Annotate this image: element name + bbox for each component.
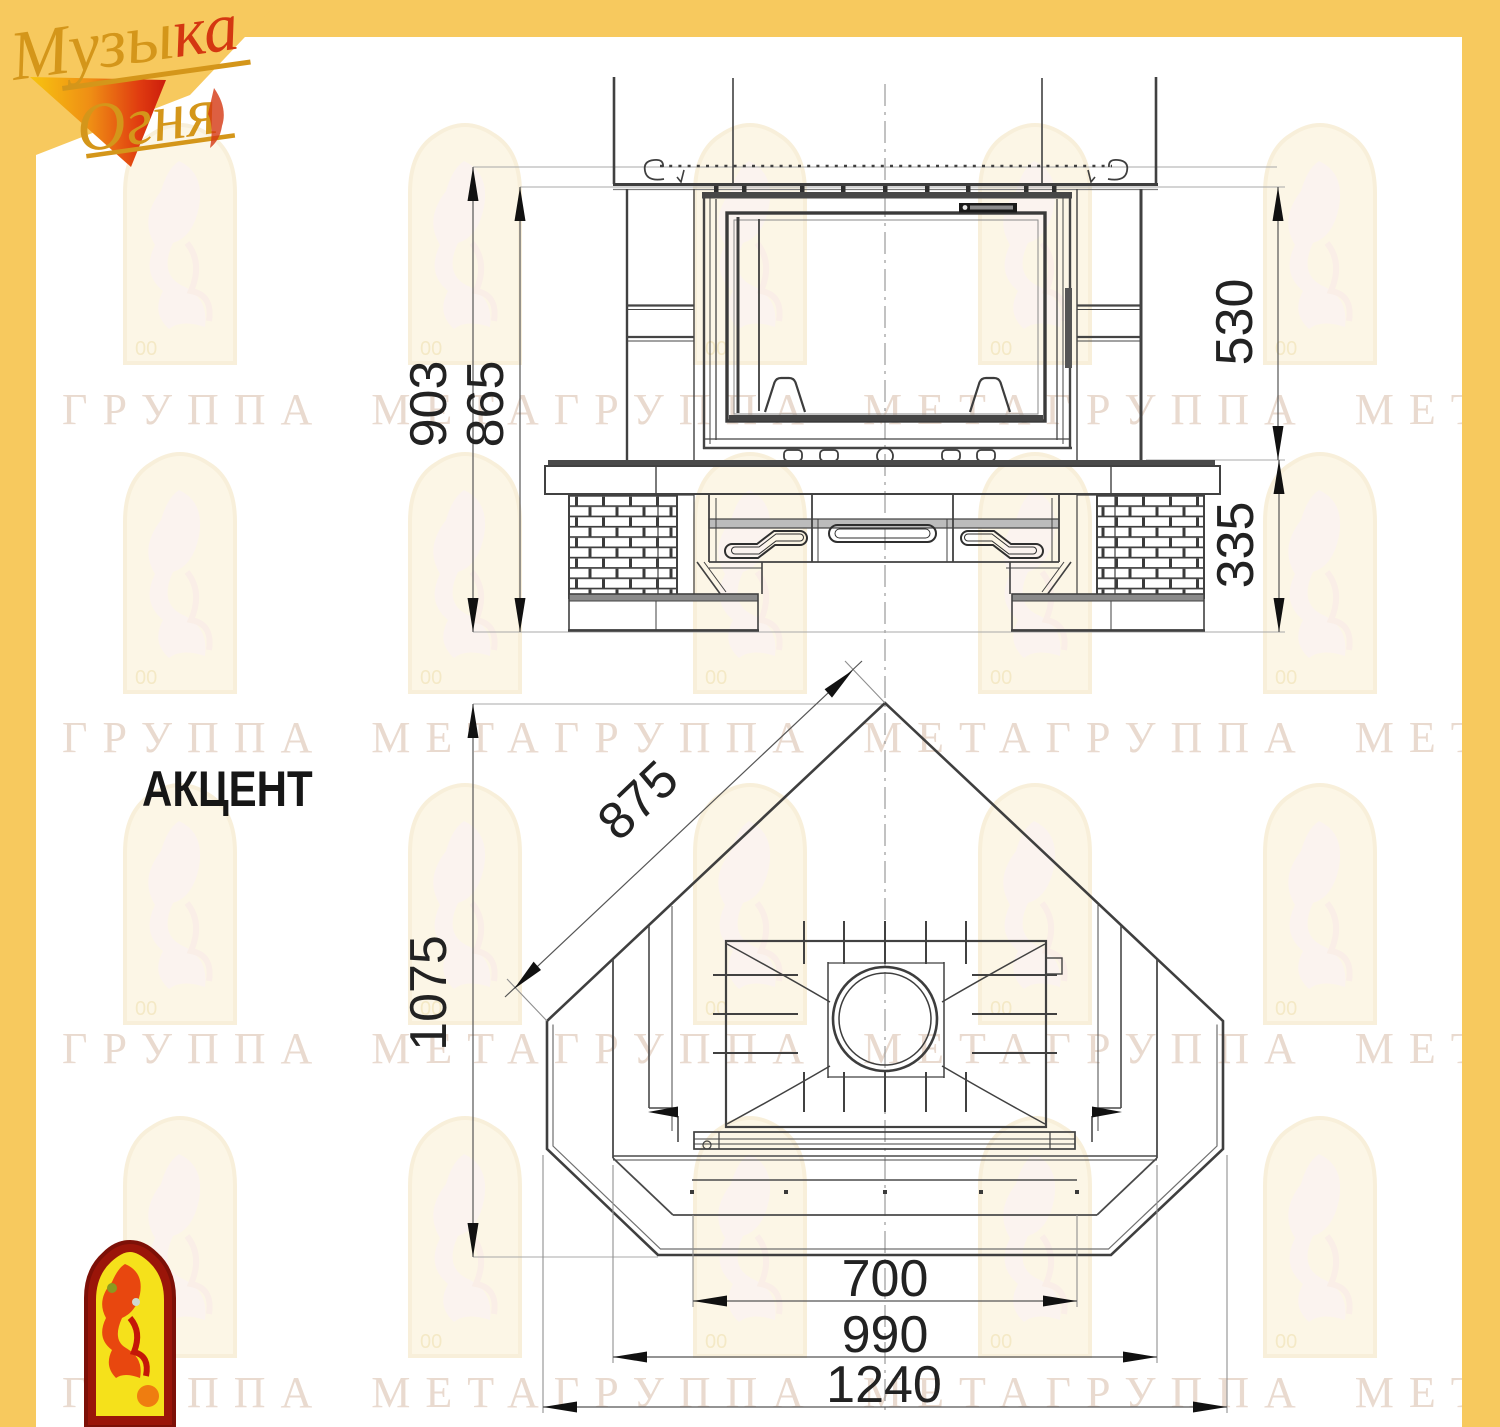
svg-text:700: 700 bbox=[842, 1250, 929, 1308]
svg-text:1240: 1240 bbox=[826, 1356, 942, 1414]
svg-text:1075: 1075 bbox=[400, 935, 458, 1051]
svg-text:865: 865 bbox=[457, 361, 515, 448]
svg-text:903: 903 bbox=[400, 361, 458, 448]
svg-text:335: 335 bbox=[1207, 502, 1265, 589]
svg-text:530: 530 bbox=[1206, 279, 1264, 366]
svg-text:875: 875 bbox=[587, 750, 690, 852]
